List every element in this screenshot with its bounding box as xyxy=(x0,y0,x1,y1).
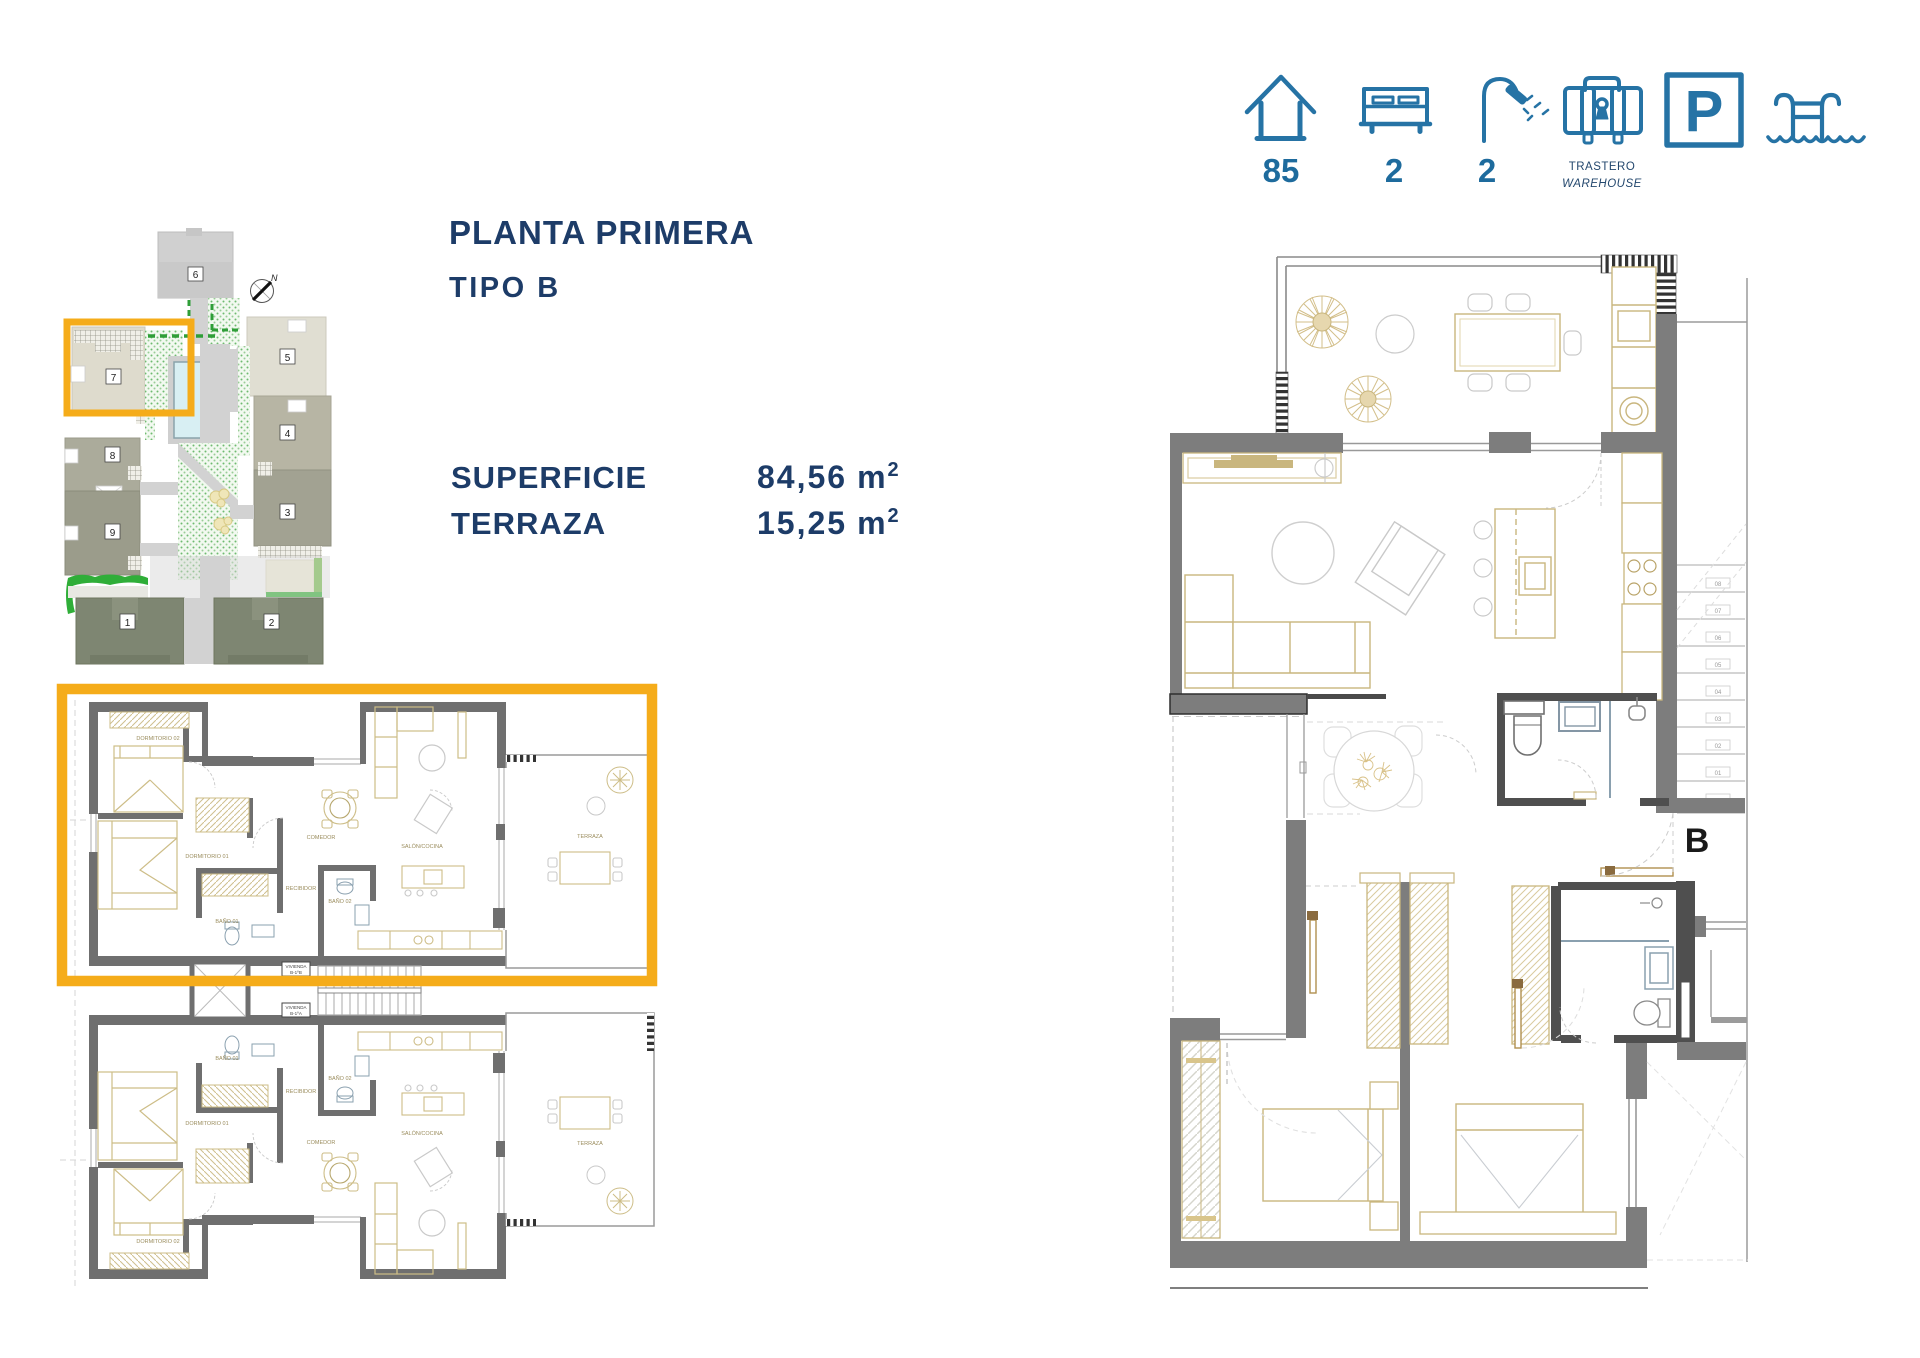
svg-text:BAÑO 01: BAÑO 01 xyxy=(215,918,238,925)
svg-text:DORMITORIO 02: DORMITORIO 02 xyxy=(136,736,179,742)
svg-text:08: 08 xyxy=(1715,582,1722,588)
svg-text:B-1ºA: B-1ºA xyxy=(290,1011,302,1016)
svg-text:COMEDOR: COMEDOR xyxy=(307,835,336,841)
svg-text:9: 9 xyxy=(110,528,116,539)
svg-text:RECIBIDOR: RECIBIDOR xyxy=(286,1089,317,1095)
svg-text:03: 03 xyxy=(1715,717,1722,723)
svg-text:DORMITORIO 01: DORMITORIO 01 xyxy=(185,854,228,860)
svg-text:8: 8 xyxy=(110,451,116,462)
svg-text:DORMITORIO 02: DORMITORIO 02 xyxy=(136,1239,179,1245)
svg-text:TRASTERO: TRASTERO xyxy=(1569,161,1636,173)
svg-text:6: 6 xyxy=(193,270,199,281)
svg-text:RECIBIDOR: RECIBIDOR xyxy=(286,886,317,892)
svg-text:WAREHOUSE: WAREHOUSE xyxy=(1562,178,1642,190)
svg-text:SUPERFICIE: SUPERFICIE xyxy=(451,460,647,495)
svg-text:PLANTA PRIMERA: PLANTA PRIMERA xyxy=(449,214,755,251)
svg-text:3: 3 xyxy=(285,508,291,519)
svg-text:2: 2 xyxy=(269,618,275,629)
svg-text:7: 7 xyxy=(111,373,117,384)
svg-text:B-1ºB: B-1ºB xyxy=(290,970,302,975)
svg-text:2: 2 xyxy=(1478,152,1496,189)
svg-text:SALÓN/COCINA: SALÓN/COCINA xyxy=(401,1130,443,1137)
svg-text:BAÑO 01: BAÑO 01 xyxy=(215,1055,238,1062)
svg-text:07: 07 xyxy=(1715,609,1722,615)
svg-text:TERRAZA: TERRAZA xyxy=(451,506,606,541)
svg-text:N: N xyxy=(271,273,278,283)
svg-text:84,56 m2: 84,56 m2 xyxy=(757,459,901,495)
svg-text:VIVIENDA: VIVIENDA xyxy=(285,1005,306,1010)
svg-text:5: 5 xyxy=(285,353,291,364)
svg-text:4: 4 xyxy=(285,429,291,440)
svg-text:1: 1 xyxy=(125,618,131,629)
svg-text:15,25 m2: 15,25 m2 xyxy=(757,505,901,541)
svg-text:TERRAZA: TERRAZA xyxy=(577,834,603,840)
svg-text:05: 05 xyxy=(1715,663,1722,669)
svg-text:01: 01 xyxy=(1715,771,1722,777)
svg-text:TERRAZA: TERRAZA xyxy=(577,1141,603,1147)
svg-text:85: 85 xyxy=(1263,152,1300,189)
svg-text:02: 02 xyxy=(1715,744,1722,750)
svg-text:COMEDOR: COMEDOR xyxy=(307,1140,336,1146)
svg-text:SALÓN/COCINA: SALÓN/COCINA xyxy=(401,843,443,850)
svg-text:P: P xyxy=(1685,79,1724,144)
svg-text:DORMITORIO 01: DORMITORIO 01 xyxy=(185,1121,228,1127)
svg-text:2: 2 xyxy=(1385,152,1403,189)
svg-text:B: B xyxy=(1685,822,1710,860)
svg-text:TIPO B: TIPO B xyxy=(449,272,561,304)
svg-text:04: 04 xyxy=(1715,690,1722,696)
svg-text:BAÑO 02: BAÑO 02 xyxy=(328,1075,351,1082)
svg-text:BAÑO 02: BAÑO 02 xyxy=(328,898,351,905)
svg-text:VIVIENDA: VIVIENDA xyxy=(285,964,306,969)
svg-text:06: 06 xyxy=(1715,636,1722,642)
